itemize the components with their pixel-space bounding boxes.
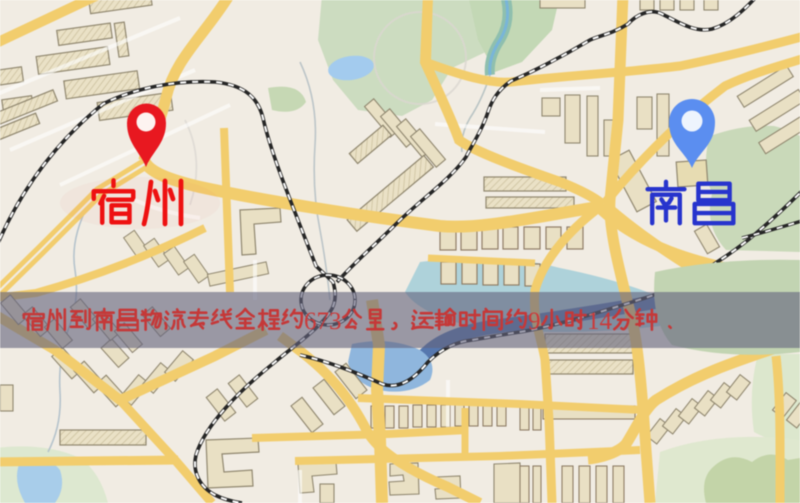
svg-text:673: 673 — [304, 308, 342, 335]
svg-text:9: 9 — [528, 308, 541, 335]
svg-text:14: 14 — [587, 308, 613, 335]
